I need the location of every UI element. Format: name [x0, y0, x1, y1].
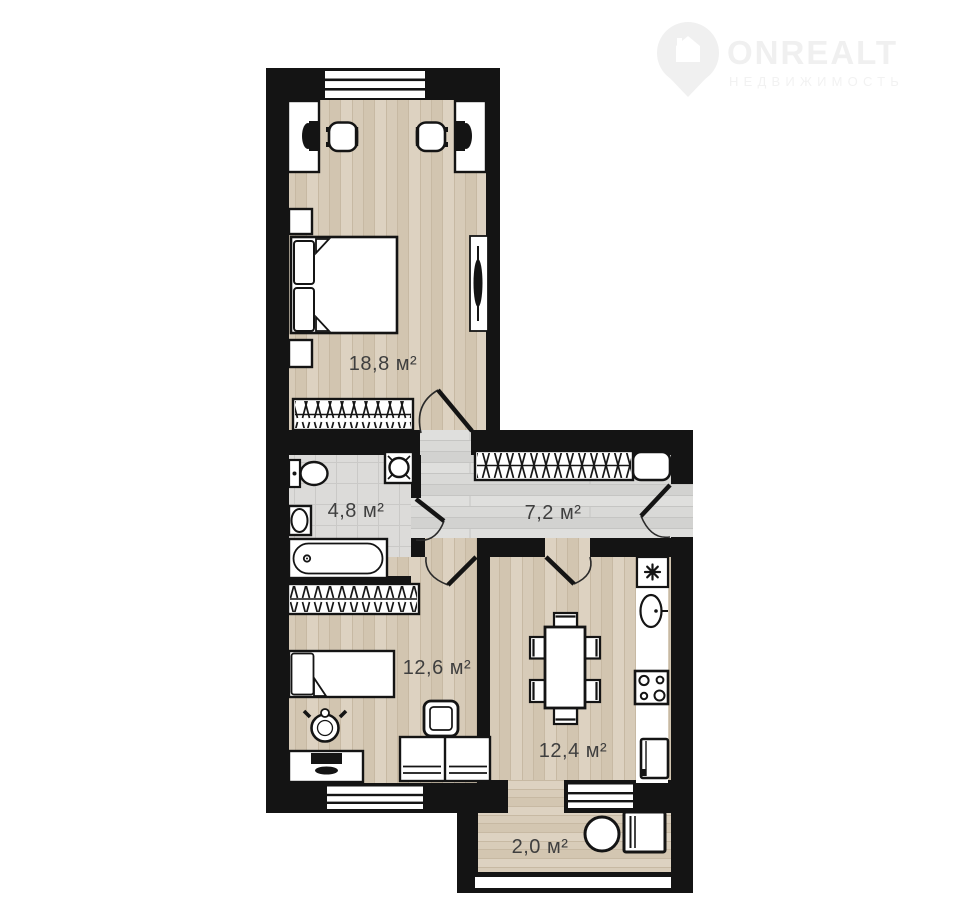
bedroom-window: [325, 71, 425, 98]
balcony-glazing: [475, 877, 671, 888]
office-chair-left-icon: [326, 123, 357, 152]
kitchen-window: [568, 785, 633, 809]
bedroom-door-gap-floor: [420, 430, 471, 455]
double-bed: [291, 237, 397, 333]
floorplan-drawing: ONREALT НЕДВИЖИМОСТЬ: [0, 0, 960, 910]
balcony-passage-floor: [508, 780, 564, 813]
stove-icon: [635, 671, 668, 704]
single-bed: [289, 651, 394, 697]
floorplan-page: ONREALT НЕДВИЖИМОСТЬ: [0, 0, 960, 910]
bedroom-area-label: 18,8 м²: [349, 353, 417, 375]
watermark-brand: ONREALT: [727, 34, 898, 71]
office-chair-right-icon: [417, 123, 448, 152]
sink-icon: [289, 506, 311, 535]
balcony-area-label: 2,0 м²: [512, 836, 569, 858]
kitchen-door-gap-floor: [545, 538, 590, 557]
fridge-icon: [641, 739, 668, 778]
wardrobe-hallway: [475, 451, 633, 480]
kitchen-area-label: 12,4 м²: [539, 740, 607, 762]
bedroom2-door-gap-floor: [425, 538, 477, 557]
balcony-furniture: [585, 812, 665, 852]
hallway-cabinet: [633, 452, 670, 480]
dresser: [400, 737, 490, 781]
tv-stand: [289, 751, 363, 782]
entrance-door-gap-floor: [671, 484, 693, 537]
balcony-table: [585, 817, 619, 851]
bedroom2-window: [327, 787, 423, 810]
bathtub-icon: [289, 539, 387, 578]
toilet-icon: [289, 460, 328, 487]
stool: [424, 701, 458, 736]
nightstand-top: [289, 209, 312, 234]
hallway-furniture: [475, 451, 670, 480]
washing-machine-icon: [385, 452, 413, 483]
wardrobe-bedroom: [293, 399, 413, 430]
house-pin-icon: [657, 22, 719, 97]
nightstand-bottom: [289, 340, 312, 367]
bedroom2-area-label: 12,6 м²: [403, 657, 471, 679]
watermark-logo: ONREALT НЕДВИЖИМОСТЬ: [657, 22, 904, 97]
hallway-area-label: 7,2 м²: [525, 502, 582, 524]
wardrobe-bedroom2: [288, 584, 419, 614]
radiator-icon: [470, 236, 488, 331]
balcony-chair: [624, 812, 665, 852]
bathroom-area-label: 4,8 м²: [328, 500, 385, 522]
vent-icon: [637, 557, 668, 587]
watermark-tagline: НЕДВИЖИМОСТЬ: [729, 74, 904, 89]
